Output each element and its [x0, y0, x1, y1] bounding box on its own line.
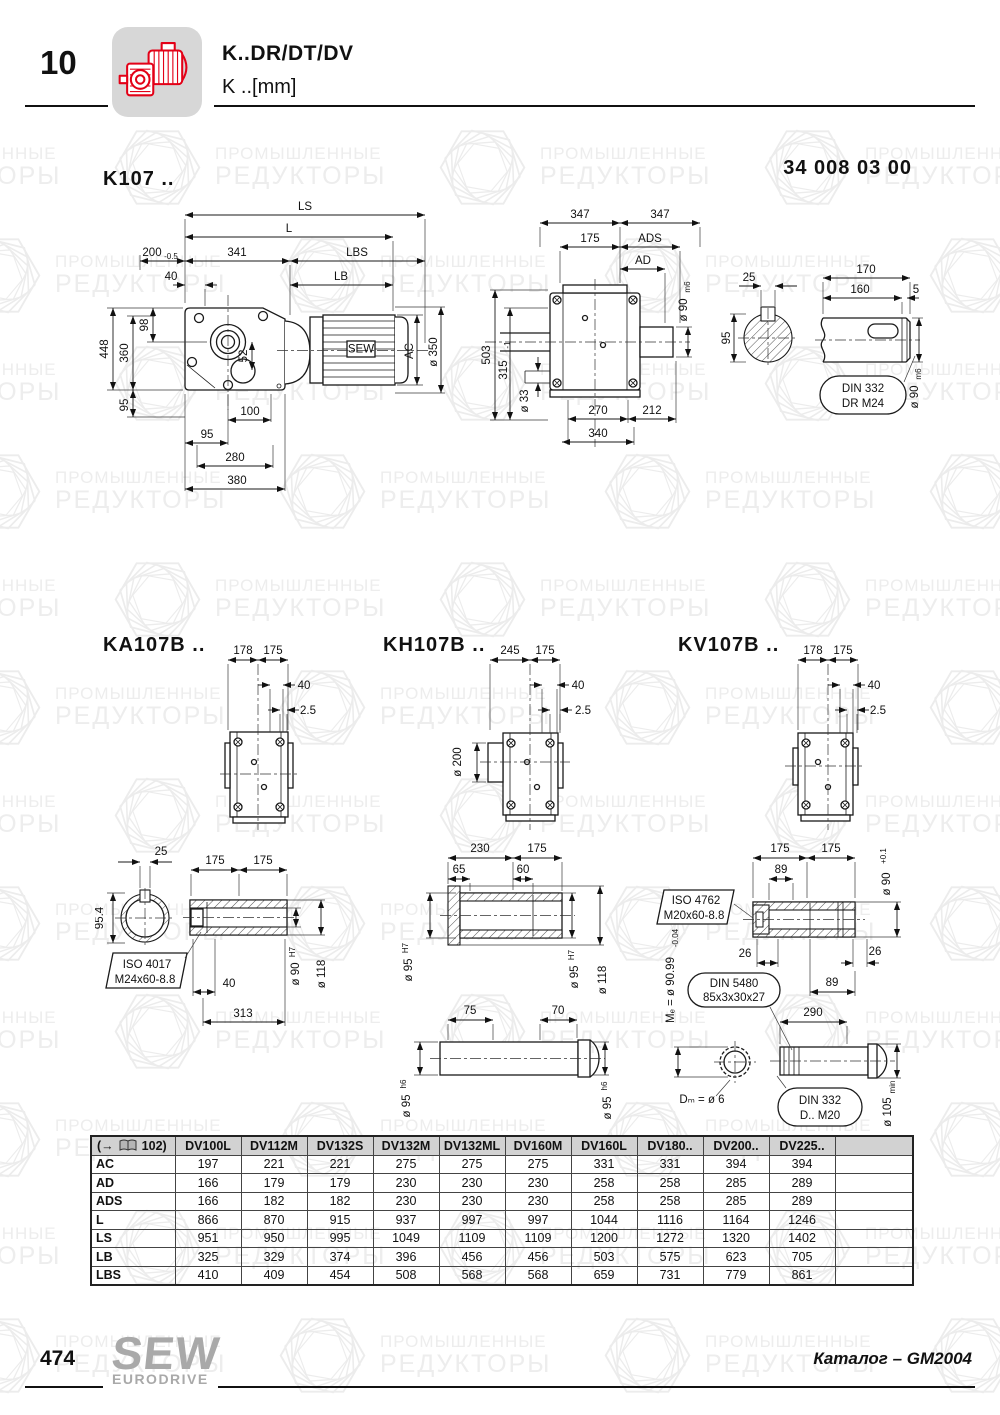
svg-text:2.5: 2.5 — [870, 705, 886, 717]
watermark: ПРОМЫШЛЕННЫЕ РЕДУКТОРЫ — [110, 552, 386, 647]
kv107b-flange-outline — [785, 733, 865, 821]
watermark-text: ПРОМЫШЛЕННЫЕ РЕДУКТОРЫ — [865, 577, 1000, 621]
svg-text:2.5: 2.5 — [300, 705, 316, 717]
svg-text:H7: H7 — [567, 949, 576, 960]
svg-text:ø 90: ø 90 — [678, 298, 690, 321]
table-row: AD166179179230230230258258285289 — [91, 1174, 913, 1193]
svg-text:M24x60-8.8: M24x60-8.8 — [115, 974, 176, 986]
footer-rule-left — [25, 1386, 103, 1388]
table-cell: 1272 — [637, 1229, 703, 1248]
watermark-swirl-icon — [0, 228, 45, 323]
svg-text:ISO 4017: ISO 4017 — [123, 959, 172, 971]
row-label: AC — [91, 1155, 175, 1174]
svg-text:L: L — [286, 223, 293, 235]
svg-text:26: 26 — [869, 946, 882, 958]
table-cell: 456 — [505, 1248, 571, 1267]
svg-text:170: 170 — [856, 264, 875, 276]
column-header: DV200.. — [703, 1136, 769, 1155]
kv107b-shaft-dimensions: 175 175 89 ø 90 +0.1 ISO 4762 M20x60-8.8… — [657, 843, 901, 1127]
watermark-text: ПРОМЫШЛЕННЫЕ РЕДУКТОРЫ — [0, 793, 61, 837]
svg-text:m6: m6 — [914, 368, 923, 380]
table-row: AC197221221275275275331331394394 — [91, 1155, 913, 1174]
kv107b-shaft-detail-drawing: 175 175 89 ø 90 +0.1 ISO 4762 M20x60-8.8… — [650, 840, 950, 1135]
svg-text:ø 95: ø 95 — [403, 958, 415, 981]
table-cell: 182 — [307, 1192, 373, 1211]
svg-text:360: 360 — [119, 343, 131, 362]
table-cell: 1320 — [703, 1229, 769, 1248]
table-cell: 705 — [769, 1248, 835, 1267]
svg-text:270: 270 — [588, 405, 607, 417]
watermark-text: ПРОМЫШЛЕННЫЕ РЕДУКТОРЫ — [215, 577, 386, 621]
table-cell: 937 — [373, 1211, 439, 1230]
table-cell: 915 — [307, 1211, 373, 1230]
watermark-text: ПРОМЫШЛЕННЫЕ РЕДУКТОРЫ — [0, 577, 61, 621]
table-cell: 950 — [241, 1229, 307, 1248]
watermark-text: ПРОМЫШЛЕННЫЕ РЕДУКТОРЫ — [540, 145, 711, 189]
table-cell: 285 — [703, 1174, 769, 1193]
kv107b-flange-drawing: 178 175 40 2.5 — [745, 640, 975, 840]
k107-shaft-outline — [738, 307, 920, 368]
table-cell: 861 — [769, 1266, 835, 1285]
svg-text:40: 40 — [572, 680, 585, 692]
column-header: DV132S — [307, 1136, 373, 1155]
svg-text:ø 350: ø 350 — [428, 337, 440, 366]
watermark: ПРОМЫШЛЕННЫЕ РЕДУКТОРЫ — [0, 660, 226, 755]
svg-text:2.5: 2.5 — [575, 705, 591, 717]
table-cell: 394 — [703, 1155, 769, 1174]
svg-text:347: 347 — [570, 209, 589, 221]
table-cell: 275 — [373, 1155, 439, 1174]
table-cell: 779 — [703, 1266, 769, 1285]
watermark: ПРОМЫШЛЕННЫЕ РЕДУКТОРЫ — [0, 336, 61, 431]
column-header-empty — [835, 1136, 913, 1155]
svg-text:D.. M20: D.. M20 — [800, 1110, 840, 1122]
catalog-page: ПРОМЫШЛЕННЫЕ РЕДУКТОРЫ ПРОМЫШЛЕННЫЕ РЕДУ… — [0, 0, 1000, 1415]
k107-front-view-drawing: 347 347 175 ADS AD ø 90 m6 503 315 -1 ø … — [480, 205, 715, 455]
table-cell: 575 — [637, 1248, 703, 1267]
watermark: ПРОМЫШЛЕННЫЕ РЕДУКТОРЫ — [600, 444, 876, 539]
svg-text:ADS: ADS — [638, 233, 662, 245]
watermark-text: ПРОМЫШЛЕННЫЕ РЕДУКТОРЫ — [0, 361, 61, 405]
svg-text:40: 40 — [223, 978, 236, 990]
table-cell: 1049 — [373, 1229, 439, 1248]
svg-text:40: 40 — [298, 680, 311, 692]
section-title-ka107b: KA107B .. — [103, 634, 205, 657]
svg-text:178: 178 — [233, 645, 252, 657]
watermark-swirl-icon — [0, 444, 45, 539]
table-cell: 331 — [571, 1155, 637, 1174]
watermark-text: ПРОМЫШЛЕННЫЕ РЕДУКТОРЫ — [0, 1225, 61, 1269]
watermark-swirl-icon — [0, 1308, 45, 1403]
svg-text:212: 212 — [642, 405, 661, 417]
svg-text:175: 175 — [263, 645, 282, 657]
svg-text:89: 89 — [826, 977, 839, 989]
ka107b-flange-outline — [220, 732, 298, 823]
row-label: L — [91, 1211, 175, 1230]
motor-brand-label: SEW — [348, 344, 374, 356]
table-cell: 997 — [439, 1211, 505, 1230]
svg-text:175: 175 — [580, 233, 599, 245]
table-cell: 275 — [439, 1155, 505, 1174]
ref-arrow: (→ — [97, 1139, 114, 1153]
watermark-text: ПРОМЫШЛЕННЫЕ РЕДУКТОРЫ — [705, 469, 876, 513]
watermark: ПРОМЫШЛЕННЫЕ РЕДУКТОРЫ — [0, 552, 61, 647]
svg-text:160: 160 — [850, 284, 869, 296]
svg-text:347: 347 — [650, 209, 669, 221]
svg-text:380: 380 — [227, 475, 246, 487]
logo-sew-text: SEW — [110, 1335, 222, 1372]
svg-text:230: 230 — [470, 843, 489, 855]
svg-text:175: 175 — [527, 843, 546, 855]
svg-text:175: 175 — [253, 855, 272, 867]
table-cell-empty — [835, 1229, 913, 1248]
watermark-swirl-icon — [0, 660, 45, 755]
table-cell: 623 — [703, 1248, 769, 1267]
svg-text:-1: -1 — [503, 341, 512, 349]
header-rule-right — [214, 105, 975, 107]
svg-text:ø 90: ø 90 — [909, 385, 921, 408]
table-row: LBS410409454508568568659731779861 — [91, 1266, 913, 1285]
svg-text:ø 95: ø 95 — [569, 965, 581, 988]
svg-text:m6: m6 — [683, 281, 692, 293]
column-header: DV225.. — [769, 1136, 835, 1155]
header-rule-left — [25, 105, 108, 107]
sew-eurodrive-logo: SEW EURODRIVE — [112, 1335, 220, 1385]
svg-text:Dₘ = ø 6: Dₘ = ø 6 — [679, 1094, 724, 1106]
svg-text:98: 98 — [139, 319, 151, 332]
svg-text:LS: LS — [298, 201, 312, 213]
dimension-table: (→ 102) DV100L DV112M DV132S DV132M DV13… — [90, 1135, 914, 1286]
svg-text:LB: LB — [334, 271, 348, 283]
watermark: ПРОМЫШЛЕННЫЕ РЕДУКТОРЫ — [0, 120, 61, 215]
table-cell: 374 — [307, 1248, 373, 1267]
table-cell: 221 — [241, 1155, 307, 1174]
watermark-swirl-icon — [925, 444, 1000, 539]
svg-text:89: 89 — [775, 864, 788, 876]
svg-text:min: min — [888, 1081, 897, 1094]
table-cell: 230 — [439, 1174, 505, 1193]
k107-side-view-drawing: SEW LS L 200 -0.5 341 LBS 40 LB 448 — [95, 195, 515, 525]
table-cell: 329 — [241, 1248, 307, 1267]
table-cell: 258 — [571, 1192, 637, 1211]
table-cell-empty — [835, 1192, 913, 1211]
svg-text:200: 200 — [142, 247, 161, 259]
svg-text:DIN 5480: DIN 5480 — [710, 978, 759, 990]
watermark: ПРОМЫШЛЕННЫЕ РЕДУКТОРЫ — [275, 1308, 551, 1403]
svg-text:40: 40 — [165, 271, 178, 283]
column-header: DV132M — [373, 1136, 439, 1155]
watermark-swirl-icon — [760, 552, 855, 647]
column-header: DV160L — [571, 1136, 637, 1155]
svg-text:DR M24: DR M24 — [842, 398, 885, 410]
table-cell: 258 — [571, 1174, 637, 1193]
table-cell: 275 — [505, 1155, 571, 1174]
table-cell: 230 — [373, 1192, 439, 1211]
svg-text:DIN 332: DIN 332 — [799, 1095, 841, 1107]
svg-text:H7: H7 — [288, 946, 297, 957]
table-cell: 197 — [175, 1155, 241, 1174]
svg-text:40: 40 — [868, 680, 881, 692]
table-cell-empty — [835, 1211, 913, 1230]
svg-text:Mₑ = ø 90.99: Mₑ = ø 90.99 — [665, 957, 677, 1023]
watermark: ПРОМЫШЛЕННЫЕ РЕДУКТОРЫ — [435, 552, 711, 647]
table-cell: 394 — [769, 1155, 835, 1174]
svg-text:315: 315 — [498, 360, 510, 379]
watermark: ПРОМЫШЛЕННЫЕ РЕДУКТОРЫ — [0, 768, 61, 863]
table-header-row: (→ 102) DV100L DV112M DV132S DV132M DV13… — [91, 1136, 913, 1155]
svg-text:52: 52 — [238, 350, 250, 363]
table-cell: 221 — [307, 1155, 373, 1174]
table-cell: 230 — [505, 1192, 571, 1211]
svg-text:100: 100 — [240, 406, 259, 418]
drawing-number: 34 008 03 00 — [700, 157, 912, 180]
watermark: ПРОМЫШЛЕННЫЕ РЕДУКТОРЫ — [760, 552, 1000, 647]
svg-text:5: 5 — [913, 284, 919, 296]
svg-text:DIN 332: DIN 332 — [842, 383, 884, 395]
ref-page: 102) — [142, 1139, 167, 1153]
catalog-book-icon — [119, 1139, 137, 1153]
svg-text:ø 118: ø 118 — [597, 966, 609, 995]
watermark-text: ПРОМЫШЛЕННЫЕ РЕДУКТОРЫ — [0, 1009, 61, 1053]
product-icon-box — [112, 27, 202, 117]
table-cell: 1200 — [571, 1229, 637, 1248]
svg-text:503: 503 — [481, 345, 493, 364]
watermark-text: ПРОМЫШЛЕННЫЕ РЕДУКТОРЫ — [540, 577, 711, 621]
watermark: ПРОМЫШЛЕННЫЕ РЕДУКТОРЫ — [925, 444, 1000, 539]
svg-text:60: 60 — [517, 864, 530, 876]
table-row: LS9519509951049110911091200127213201402 — [91, 1229, 913, 1248]
svg-text:95: 95 — [721, 332, 733, 345]
watermark-text: ПРОМЫШЛЕННЫЕ РЕДУКТОРЫ — [215, 145, 386, 189]
footer-catalog-label: Каталог – GM2004 — [650, 1349, 972, 1369]
footer-rule-right — [218, 1386, 975, 1388]
table-cell-empty — [835, 1155, 913, 1174]
row-label: LB — [91, 1248, 175, 1267]
table-cell: 258 — [637, 1192, 703, 1211]
table-cell: 731 — [637, 1266, 703, 1285]
table-cell: 179 — [241, 1174, 307, 1193]
table-cell: 396 — [373, 1248, 439, 1267]
k107-side-outline — [185, 295, 430, 410]
table-cell: 285 — [703, 1192, 769, 1211]
svg-text:95: 95 — [119, 399, 131, 412]
svg-text:290: 290 — [803, 1007, 822, 1019]
watermark-swirl-icon — [110, 552, 205, 647]
table-cell: 258 — [637, 1174, 703, 1193]
watermark: ПРОМЫШЛЕННЫЕ РЕДУКТОРЫ — [925, 228, 1000, 323]
table-cell: 289 — [769, 1192, 835, 1211]
ka107b-shaft-outline — [115, 888, 295, 948]
page-number: 474 — [40, 1347, 75, 1371]
row-label: LBS — [91, 1266, 175, 1285]
svg-text:M20x60-8.8: M20x60-8.8 — [664, 910, 725, 922]
column-header: DV100L — [175, 1136, 241, 1155]
svg-text:AD: AD — [635, 255, 651, 267]
row-label: AD — [91, 1174, 175, 1193]
table-cell: 508 — [373, 1266, 439, 1285]
svg-text:448: 448 — [99, 339, 111, 358]
svg-text:ø 33: ø 33 — [519, 389, 531, 412]
table-cell: 454 — [307, 1266, 373, 1285]
table-cell: 1164 — [703, 1211, 769, 1230]
table-cell: 951 — [175, 1229, 241, 1248]
table-cell: 1044 — [571, 1211, 637, 1230]
table-cell: 568 — [439, 1266, 505, 1285]
kh107b-shaft-dimensions: 230 175 65 60 ø 95 H7 ø 95 H7 ø 118 75 7… — [400, 843, 614, 1120]
svg-text:H7: H7 — [401, 942, 410, 953]
svg-text:175: 175 — [833, 645, 852, 657]
table-cell: 166 — [175, 1192, 241, 1211]
table-cell: 230 — [373, 1174, 439, 1193]
watermark-swirl-icon — [0, 1092, 45, 1187]
table-row: ADS166182182230230230258258285289 — [91, 1192, 913, 1211]
page-subtitle: K ..[mm] — [222, 76, 296, 99]
svg-text:85x3x30x27: 85x3x30x27 — [703, 992, 765, 1004]
svg-text:AC: AC — [404, 343, 416, 359]
table-row: L8668709159379979971044111611641246 — [91, 1211, 913, 1230]
svg-text:ø 95: ø 95 — [602, 1096, 614, 1119]
section-title-k107: K107 .. — [103, 168, 174, 191]
column-header: DV160M — [505, 1136, 571, 1155]
table-cell: 659 — [571, 1266, 637, 1285]
svg-text:175: 175 — [535, 645, 554, 657]
svg-text:h6: h6 — [400, 1079, 408, 1088]
svg-text:ø 90: ø 90 — [881, 872, 893, 895]
watermark-swirl-icon — [0, 876, 45, 971]
column-header: DV180.. — [637, 1136, 703, 1155]
table-cell-empty — [835, 1248, 913, 1267]
svg-text:65: 65 — [453, 864, 466, 876]
column-header: DV112M — [241, 1136, 307, 1155]
svg-text:25: 25 — [155, 846, 168, 858]
table-ref-cell: (→ 102) — [91, 1136, 175, 1155]
svg-text:178: 178 — [803, 645, 822, 657]
watermark-swirl-icon — [275, 1308, 370, 1403]
table-cell: 179 — [307, 1174, 373, 1193]
svg-text:25: 25 — [743, 272, 756, 284]
watermark-swirl-icon — [435, 552, 530, 647]
gearmotor-icon — [115, 30, 199, 114]
svg-text:ISO 4762: ISO 4762 — [672, 895, 721, 907]
svg-text:340: 340 — [588, 428, 607, 440]
table-cell: 870 — [241, 1211, 307, 1230]
svg-text:ø 90: ø 90 — [290, 962, 302, 985]
svg-text:95: 95 — [201, 429, 214, 441]
table-cell: 995 — [307, 1229, 373, 1248]
svg-text:341: 341 — [227, 247, 246, 259]
svg-text:ø 95: ø 95 — [401, 1094, 413, 1117]
svg-text:245: 245 — [500, 645, 519, 657]
table-cell: 166 — [175, 1174, 241, 1193]
watermark-text: ПРОМЫШЛЕННЫЕ РЕДУКТОРЫ — [0, 145, 61, 189]
svg-text:175: 175 — [205, 855, 224, 867]
svg-text:+0.1: +0.1 — [879, 848, 888, 864]
table-cell: 997 — [505, 1211, 571, 1230]
table-cell: 410 — [175, 1266, 241, 1285]
table-cell: 456 — [439, 1248, 505, 1267]
table-cell: 568 — [505, 1266, 571, 1285]
table-cell: 866 — [175, 1211, 241, 1230]
ka107b-shaft-detail-drawing: 25 95.4 175 175 ø 90 H7 ø 118 ISO 4017 M… — [95, 840, 395, 1040]
table-cell: 1109 — [505, 1229, 571, 1248]
svg-text:95.4: 95.4 — [95, 906, 106, 929]
watermark-swirl-icon — [925, 228, 1000, 323]
table-cell: 230 — [505, 1174, 571, 1193]
k107-shaft-detail-drawing: 25 95 170 160 5 ø 90 m6 DIN 332 DR M24 — [720, 250, 930, 420]
table-cell: 331 — [637, 1155, 703, 1174]
kh107b-flange-drawing: 245 175 40 2.5 ø 200 — [430, 640, 660, 840]
svg-text:75: 75 — [464, 1005, 477, 1017]
kh107b-shaft-detail-drawing: 230 175 65 60 ø 95 H7 ø 95 H7 ø 118 75 7… — [400, 840, 660, 1132]
row-label: ADS — [91, 1192, 175, 1211]
column-header: DV132ML — [439, 1136, 505, 1155]
watermark: ПРОМЫШЛЕННЫЕ РЕДУКТОРЫ — [0, 984, 61, 1079]
table-cell: 1116 — [637, 1211, 703, 1230]
watermark: ПРОМЫШЛЕННЫЕ РЕДУКТОРЫ — [0, 1200, 61, 1295]
svg-text:-0.04: -0.04 — [671, 928, 680, 947]
table-cell: 325 — [175, 1248, 241, 1267]
table-body: AC197221221275275275331331394394AD166179… — [91, 1155, 913, 1285]
table-cell: 230 — [439, 1192, 505, 1211]
k107-front-outline — [485, 279, 690, 447]
svg-text:26: 26 — [739, 948, 752, 960]
table-cell: 182 — [241, 1192, 307, 1211]
svg-text:70: 70 — [552, 1005, 565, 1017]
svg-text:ø 118: ø 118 — [316, 960, 328, 989]
watermark-text: ПРОМЫШЛЕННЫЕ РЕДУКТОРЫ — [380, 1333, 551, 1377]
table-cell: 1246 — [769, 1211, 835, 1230]
svg-text:313: 313 — [233, 1008, 252, 1020]
svg-text:ø 105: ø 105 — [882, 1097, 894, 1126]
svg-text:ø 200: ø 200 — [452, 747, 464, 776]
table-cell: 1402 — [769, 1229, 835, 1248]
page-title: K..DR/DT/DV — [222, 42, 354, 66]
svg-text:h6: h6 — [600, 1081, 609, 1090]
table-cell-empty — [835, 1266, 913, 1285]
row-label: LS — [91, 1229, 175, 1248]
svg-text:175: 175 — [770, 843, 789, 855]
kh107b-flange-outline — [480, 733, 570, 821]
ka107b-flange-drawing: 178 175 40 2.5 — [200, 640, 400, 840]
watermark-swirl-icon — [600, 444, 695, 539]
table-cell: 503 — [571, 1248, 637, 1267]
svg-text:-0.5: -0.5 — [164, 252, 178, 261]
table-cell-empty — [835, 1174, 913, 1193]
table-cell: 409 — [241, 1266, 307, 1285]
svg-text:175: 175 — [821, 843, 840, 855]
chapter-number: 10 — [40, 44, 77, 82]
table-cell: 1109 — [439, 1229, 505, 1248]
svg-text:280: 280 — [225, 452, 244, 464]
svg-text:LBS: LBS — [346, 247, 368, 259]
table-row: LB325329374396456456503575623705 — [91, 1248, 913, 1267]
table-cell: 289 — [769, 1174, 835, 1193]
